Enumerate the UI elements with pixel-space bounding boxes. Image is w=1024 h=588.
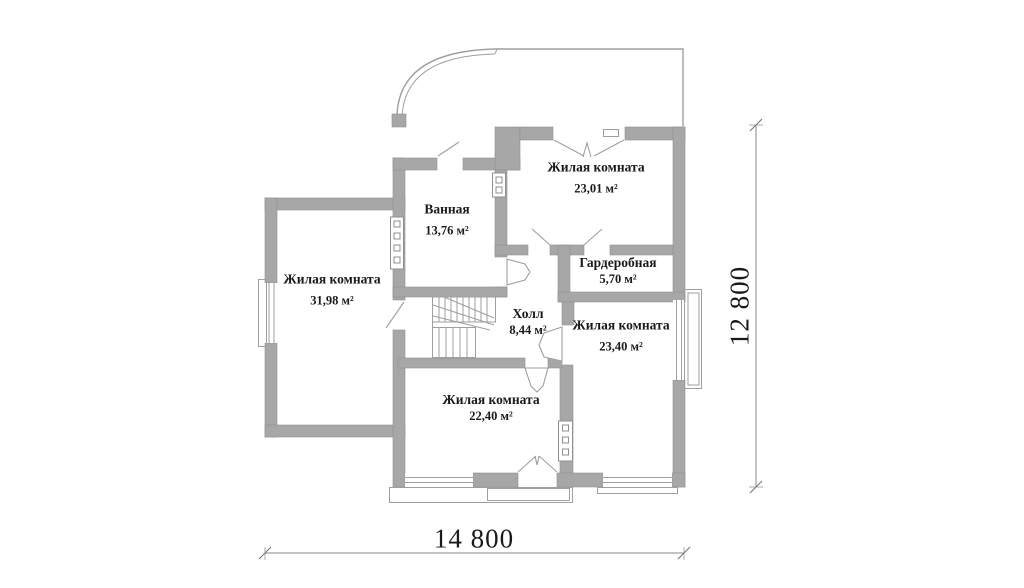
floor-plan-page: Жилая комната 23,01 м² Ванная 13,76 м² Ж…: [0, 0, 1024, 588]
dimension-height-label: 12 800: [725, 266, 756, 346]
stairs: [433, 297, 496, 358]
porch-steps: [390, 488, 573, 503]
terrace-outline: [397, 49, 683, 126]
floor-plan-drawing: [0, 0, 1024, 588]
dimension-lines: [259, 119, 763, 560]
windows: [259, 130, 702, 494]
dimension-width-label: 14 800: [434, 524, 514, 555]
